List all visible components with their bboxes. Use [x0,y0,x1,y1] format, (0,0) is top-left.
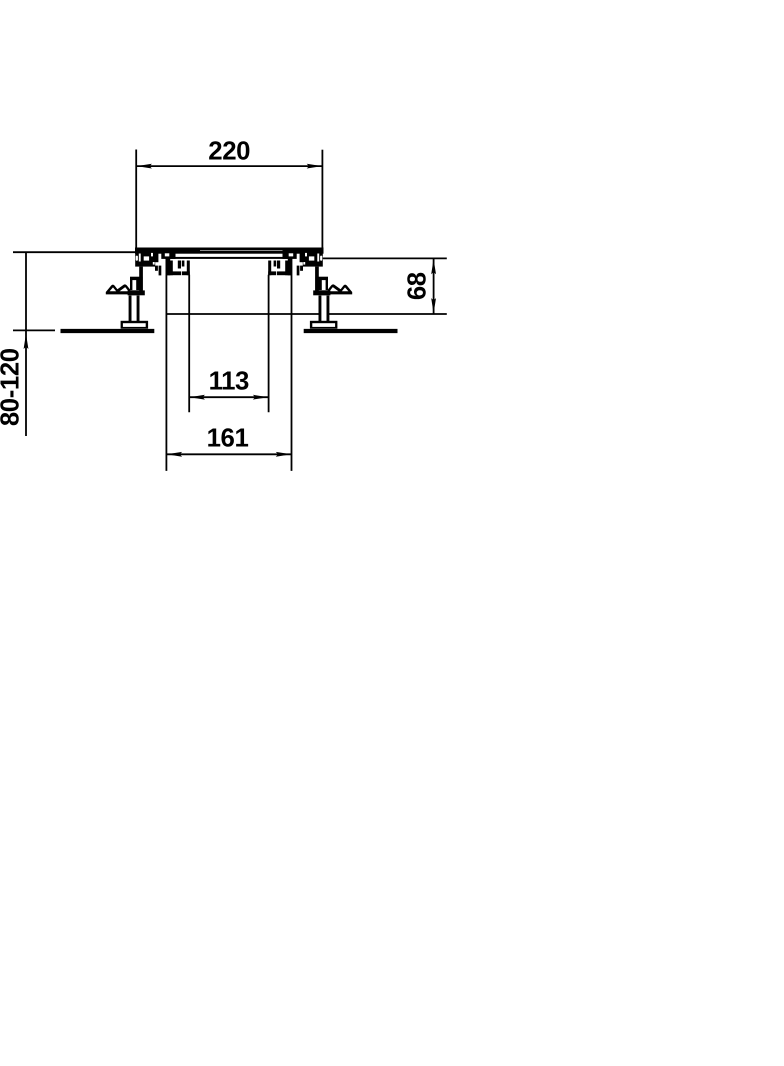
svg-text:113: 113 [209,367,249,395]
svg-text:220: 220 [208,138,250,166]
svg-text:161: 161 [207,425,249,453]
svg-text:68: 68 [404,272,432,300]
svg-text:80-120: 80-120 [0,348,25,426]
